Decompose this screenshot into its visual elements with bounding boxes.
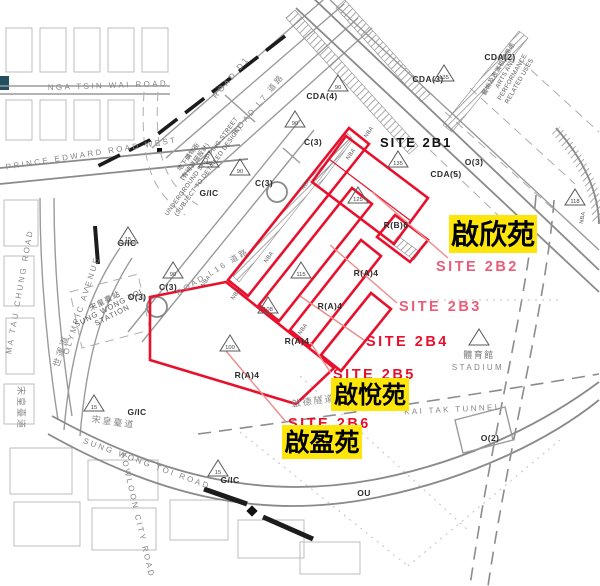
svg-text:啟盈苑: 啟盈苑: [284, 428, 359, 457]
edge-label-fragment: [0, 76, 9, 90]
svg-text:15: 15: [125, 237, 131, 243]
zone-label-c3: C(3): [304, 137, 322, 147]
svg-text:90: 90: [335, 85, 341, 91]
svg-text:125: 125: [353, 197, 363, 203]
svg-text:118: 118: [570, 199, 579, 205]
svg-text:135: 135: [439, 75, 449, 81]
estate-kai-yuet: 啟悅苑: [331, 378, 409, 411]
zone-label-ra4: R(A)4: [235, 370, 260, 380]
estate-kai-ying: 啟盈苑: [282, 425, 362, 459]
zone-label-o3: O(3): [465, 157, 484, 167]
svg-text:15: 15: [215, 470, 221, 476]
svg-text:108: 108: [263, 307, 273, 313]
svg-text:90: 90: [237, 169, 243, 175]
road-label: STADIUM: [452, 363, 504, 372]
svg-text:115: 115: [296, 272, 305, 278]
road-label: 宋皇臺道: [16, 386, 27, 430]
svg-text:15: 15: [91, 405, 97, 411]
map-canvas: CDA(2)CDA(3)CDA(4)CDA(5)O(3)O(3)O(2)OUR(…: [0, 0, 600, 586]
zone-label-ra4: R(A)4: [318, 301, 343, 311]
site-2b2-label: SITE 2B2: [436, 259, 519, 275]
site-2b1-label: SITE 2B1: [380, 135, 452, 150]
svg-text:90: 90: [292, 121, 298, 127]
svg-text:135: 135: [393, 161, 403, 167]
zoning-plan-map: CDA(2)CDA(3)CDA(4)CDA(5)O(3)O(3)O(2)OUR(…: [0, 0, 600, 586]
zone-label-gic: G/IC: [199, 188, 218, 198]
zone-label-ra4: R(A)4: [354, 268, 379, 278]
svg-text:100: 100: [225, 345, 235, 351]
road-label: 體育館: [463, 349, 495, 360]
zone-label-ou: OU: [357, 488, 371, 498]
svg-text:45: 45: [206, 161, 212, 167]
zone-label-cda4: CDA(4): [306, 91, 337, 101]
svg-text:啟悅苑: 啟悅苑: [334, 381, 406, 409]
svg-text:啟欣苑: 啟欣苑: [451, 219, 535, 250]
zone-label-c3: C(3): [255, 178, 273, 188]
site-2b4-label: SITE 2B4: [366, 334, 449, 350]
zone-label-gic: G/IC: [127, 407, 146, 417]
zone-label-ra4: R(A)4: [285, 336, 310, 346]
site-2b3-label: SITE 2B3: [399, 299, 482, 315]
svg-text:90: 90: [170, 272, 176, 278]
zone-label-cda5: CDA(5): [430, 169, 461, 179]
estate-kai-yan: 啟欣苑: [449, 215, 537, 253]
zone-label-o2: O(2): [481, 433, 500, 443]
zone-label-rb6: R(B)6: [384, 220, 409, 230]
